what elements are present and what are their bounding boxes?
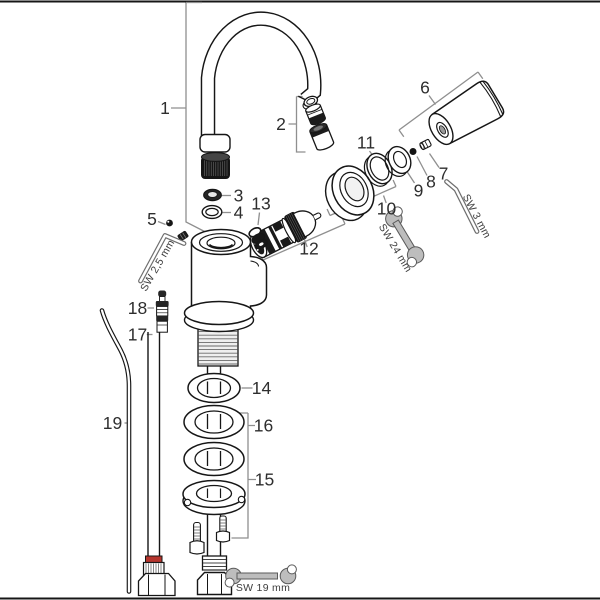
part-label-7: 7 [439,164,449,184]
seal-ring-3 [204,189,222,200]
handle-6 [422,79,506,152]
spout [208,19,314,148]
washer-16 [184,406,244,439]
leader-7 [430,154,440,168]
spout-tip [200,135,230,179]
page-border [0,2,600,599]
hose-connector-18 [156,291,169,333]
part-label-19: 19 [103,413,122,433]
mounting-flange-15 [183,481,245,515]
washer-14 [188,374,240,403]
part-label-10: 10 [377,199,397,219]
hose-red-band [146,556,163,563]
part-label-13: 13 [251,194,270,214]
pop-up-rod-19 [102,311,129,592]
leader-5 [158,222,166,225]
aerator-set [301,94,335,151]
part-label-4: 4 [234,203,244,223]
part-label-8: 8 [426,172,436,192]
hose-nut [139,574,176,596]
leader-13 [258,213,260,226]
part-label-5: 5 [147,209,157,229]
part-label-11: 11 [357,133,375,153]
part-label-18: 18 [128,298,147,318]
part-label-1: 1 [160,98,170,118]
mounting-bolt-right [217,516,230,542]
diagram-canvas: 1 2 3 4 5 6 7 8 9 10 11 12 13 14 15 16 1… [0,0,600,600]
part-label-17: 17 [128,325,147,345]
part-label-16: 16 [254,416,273,436]
part-label-6: 6 [420,78,430,98]
mounting-bolt-left [190,523,204,555]
exploded-parts-diagram: 1 2 3 4 5 6 7 8 9 10 11 12 13 14 15 16 1… [0,0,600,600]
part-label-2: 2 [276,114,286,134]
part-label-9: 9 [414,181,424,201]
washer-15 [184,443,244,476]
aerator-housing [202,153,230,162]
part-label-12: 12 [299,239,318,259]
part-label-15: 15 [255,470,274,490]
grub-screw-7 [419,139,432,150]
part-label-14: 14 [252,378,272,398]
part-labels: 1 2 3 4 5 6 7 8 9 10 11 12 13 14 15 16 1… [103,78,449,490]
o-ring-4 [202,206,222,219]
tool-label-sw19: SW 19 mm [236,582,290,594]
ball-8 [410,148,417,155]
supply-hose-17 [139,332,176,596]
